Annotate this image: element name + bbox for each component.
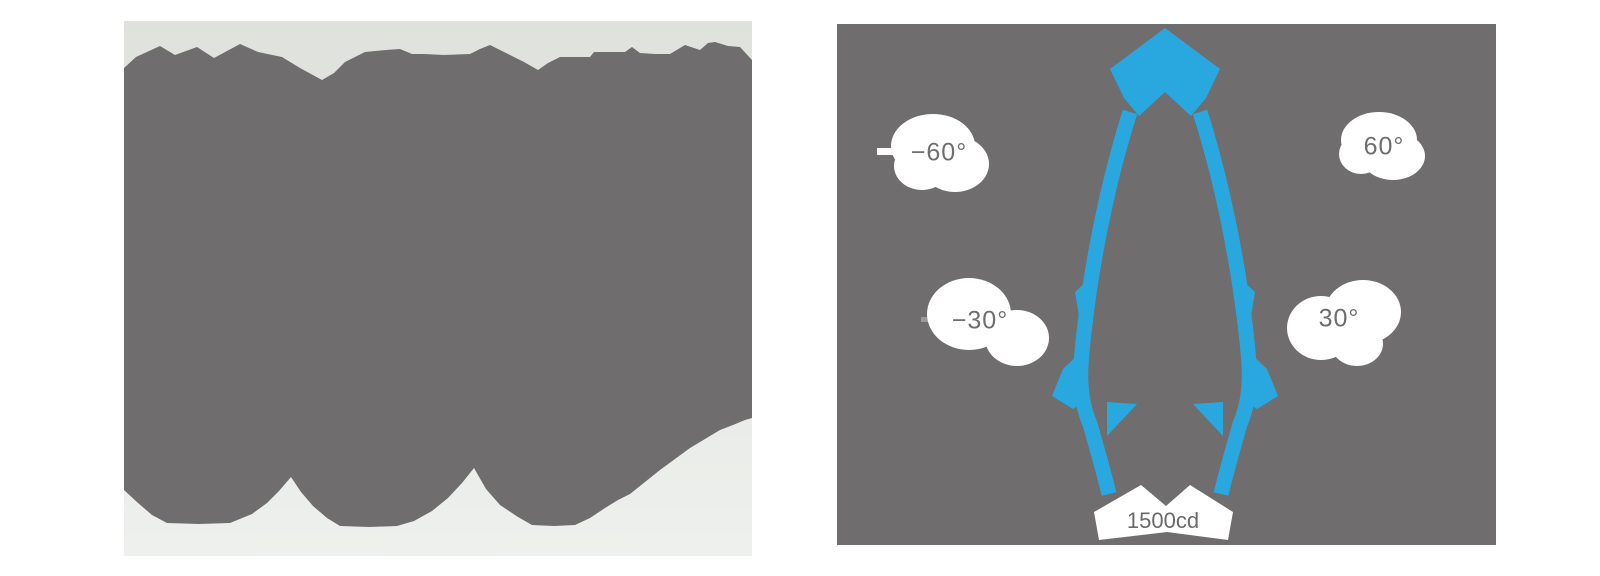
product-image-panel <box>124 21 752 556</box>
page: −60° 60° −30° 30° 1500cd <box>0 0 1600 576</box>
angle-label-pos60: 60° <box>1364 133 1405 162</box>
angle-label-neg60: −60° <box>911 139 967 168</box>
angle-label-pos30: 30° <box>1319 305 1360 334</box>
intensity-label: 1500cd <box>1127 508 1199 534</box>
intensity-curve <box>1052 28 1278 494</box>
photometric-diagram-panel: −60° 60° −30° 30° 1500cd <box>837 24 1496 545</box>
product-silhouette-image <box>124 21 752 556</box>
photometric-diagram <box>837 24 1496 545</box>
angle-label-neg30: −30° <box>952 307 1008 336</box>
